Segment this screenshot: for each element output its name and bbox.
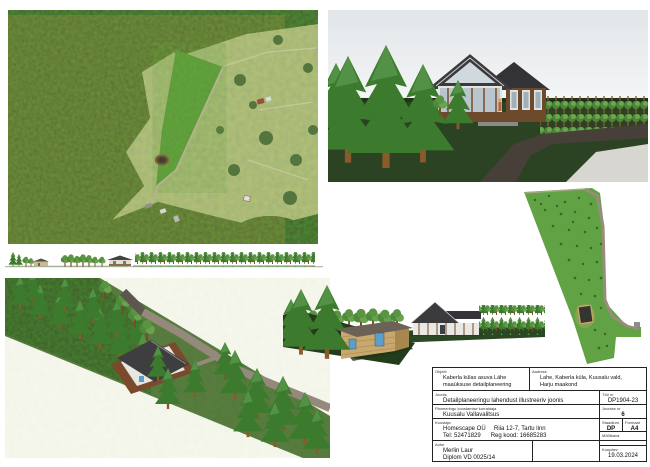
sheetno-value: 6 <box>600 411 646 419</box>
site-plan <box>515 188 646 365</box>
building-footprint <box>578 305 593 324</box>
render-street-view <box>328 10 648 182</box>
plan-sheet: Objekt Kaberla külas asuva Lähe maaüksus… <box>0 0 650 467</box>
drawing-value: Detailplaneeringu lahendust illustreeriv… <box>433 397 599 405</box>
render-plot-aerial <box>5 278 330 458</box>
format-value: A4 <box>623 425 646 432</box>
titleblock-object-cell: Objekt Kaberla külas asuva Lähe maaüksus… <box>433 368 530 391</box>
titleblock-stage-cell: Staadium DP <box>600 419 623 432</box>
elevation-tree-group <box>61 254 106 266</box>
object-value: Kaberla külas asuva Lähe maaüksuse detai… <box>433 374 529 388</box>
titleblock-workno-cell: Töö nr DP1904-23 <box>600 391 646 405</box>
elevation-tree-row <box>135 252 315 267</box>
plot-area <box>524 188 641 364</box>
elevation-house-1 <box>33 259 49 267</box>
titleblock-sheetno-cell: Joonise nr 6 <box>600 405 646 419</box>
author-value: Merlin Laur Diplom VD 0025/14 <box>433 447 532 461</box>
stage-value: DP <box>600 425 622 432</box>
titleblock-empty-cell <box>533 441 600 461</box>
titleblock-author-cell: Autor Merlin Laur Diplom VD 0025/14 <box>433 441 533 461</box>
person <box>498 98 502 111</box>
company-value: Homescape OÜ Riia 12-7, Tartu linn Tel: … <box>433 425 599 440</box>
organizer-value: Kuusalu Vallavalitsus <box>433 411 599 419</box>
stage-label: Staadium <box>600 419 622 425</box>
titleblock-scale-cell: Mõõtkava <box>600 432 646 441</box>
far-house <box>411 302 483 336</box>
titleblock-organizer-cell: Planeeringu koostamise korraldaja Kuusal… <box>433 405 600 419</box>
scale-value <box>600 438 646 439</box>
titleblock-date-cell: Kuupäev 19.03.2024 <box>600 446 646 461</box>
render-yard-view <box>283 283 545 365</box>
elevation-strip <box>5 248 323 270</box>
pond <box>156 155 169 165</box>
titleblock-company-cell: Koostaja Homescape OÜ Riia 12-7, Tartu l… <box>433 419 600 441</box>
date-value: 19.03.2024 <box>600 452 646 460</box>
titleblock-drawing-cell: Joonis Detailplaneeringu lahendust illus… <box>433 391 600 405</box>
elevation-house-2 <box>107 256 133 267</box>
address-value: Lahe, Kaberla küla, Kuusalu vald, Harju … <box>530 374 646 388</box>
workno-value: DP1904-23 <box>600 397 646 405</box>
titleblock-address-cell: Aadress Lahe, Kaberla küla, Kuusalu vald… <box>530 368 646 391</box>
titleblock-format-cell: Formaat A4 <box>623 419 646 432</box>
title-block: Objekt Kaberla külas asuva Lähe maaüksus… <box>432 367 647 462</box>
aerial-photo <box>8 10 318 244</box>
